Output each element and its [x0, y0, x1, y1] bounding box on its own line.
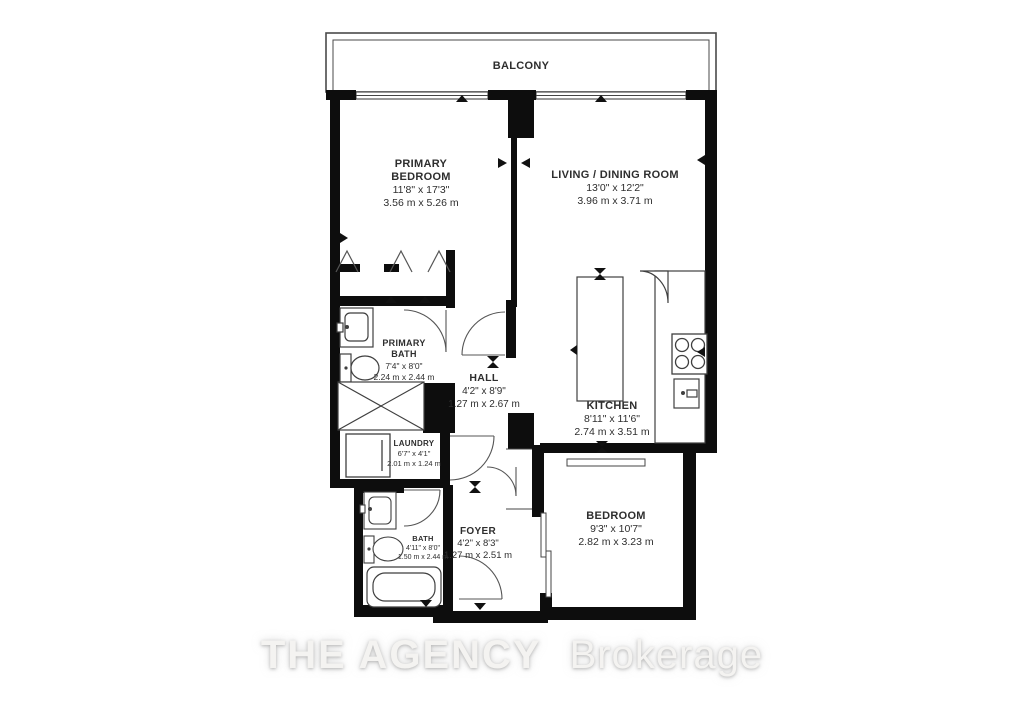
svg-text:BATH: BATH: [391, 349, 417, 359]
svg-text:3.96 m x 3.71 m: 3.96 m x 3.71 m: [577, 195, 653, 207]
svg-text:13'0" x 12'2": 13'0" x 12'2": [586, 182, 644, 194]
svg-text:4'11" x 8'0": 4'11" x 8'0": [406, 545, 440, 552]
svg-text:FOYER: FOYER: [460, 526, 496, 537]
svg-text:2.74 m x 3.51 m: 2.74 m x 3.51 m: [574, 426, 650, 438]
living-dining-label: LIVING / DINING ROOM 13'0" x 12'2" 3.96 …: [551, 169, 679, 207]
foyer-label: FOYER 4'2" x 8'3" 1.27 m x 2.51 m: [444, 526, 512, 561]
svg-text:11'8" x 17'3": 11'8" x 17'3": [393, 184, 450, 196]
washer-icon: [346, 434, 390, 477]
watermark-suffix: Brokerage: [570, 633, 764, 677]
floor-plan-page: BALCONY PRIMARY BEDROOM 11'8" x 17'3" 3.…: [0, 0, 1024, 724]
svg-text:LAUNDRY: LAUNDRY: [394, 439, 435, 448]
svg-text:3.56 m x 5.26 m: 3.56 m x 5.26 m: [383, 197, 459, 209]
svg-text:6'7" x 4'1": 6'7" x 4'1": [398, 449, 431, 458]
shower-icon: [338, 382, 424, 430]
bedroom-label: BEDROOM 9'3" x 10'7" 2.82 m x 3.23 m: [578, 510, 654, 548]
svg-text:HALL: HALL: [469, 372, 498, 384]
closet-shelf: [567, 459, 645, 466]
sink-icon: [360, 492, 396, 529]
sliding-door: [541, 513, 551, 597]
primary-bath-label: PRIMARY BATH 7'4" x 8'0" 2.24 m x 2.44 m: [374, 338, 435, 382]
watermark-brand: THE AGENCY: [261, 633, 542, 677]
watermark: THE AGENCYBrokerage: [0, 633, 1024, 678]
primary-bedroom-label: PRIMARY BEDROOM 11'8" x 17'3" 3.56 m x 5…: [383, 158, 459, 209]
svg-text:BEDROOM: BEDROOM: [391, 171, 451, 183]
svg-text:BATH: BATH: [412, 534, 433, 543]
svg-text:1.50 m x 2.44 m: 1.50 m x 2.44 m: [398, 554, 448, 561]
svg-text:2.82 m x 3.23 m: 2.82 m x 3.23 m: [578, 536, 654, 548]
balcony-label: BALCONY: [493, 60, 550, 72]
svg-text:4'2" x 8'9": 4'2" x 8'9": [462, 386, 506, 397]
svg-text:2.01 m x 1.24 m: 2.01 m x 1.24 m: [387, 459, 441, 468]
svg-text:LIVING / DINING ROOM: LIVING / DINING ROOM: [551, 169, 679, 181]
laundry-label: LAUNDRY 6'7" x 4'1" 2.01 m x 1.24 m: [387, 439, 441, 468]
svg-text:8'11" x 11'6": 8'11" x 11'6": [584, 413, 640, 425]
svg-text:PRIMARY: PRIMARY: [382, 338, 425, 348]
bath-label: BATH 4'11" x 8'0" 1.50 m x 2.44 m: [398, 534, 448, 561]
svg-text:1.27 m x 2.51 m: 1.27 m x 2.51 m: [444, 550, 512, 561]
svg-text:PRIMARY: PRIMARY: [395, 158, 448, 170]
svg-text:4'2" x 8'3": 4'2" x 8'3": [457, 538, 499, 549]
svg-text:2.24 m x 2.44 m: 2.24 m x 2.44 m: [374, 372, 435, 382]
floor-plan-svg: BALCONY PRIMARY BEDROOM 11'8" x 17'3" 3.…: [0, 0, 1024, 724]
svg-text:1.27 m x 2.67 m: 1.27 m x 2.67 m: [448, 399, 520, 410]
kitchen-label: KITCHEN 8'11" x 11'6" 2.74 m x 3.51 m: [574, 400, 650, 438]
svg-text:BEDROOM: BEDROOM: [586, 510, 646, 522]
sink-icon: [337, 308, 373, 347]
svg-text:7'4" x 8'0": 7'4" x 8'0": [385, 361, 422, 371]
svg-text:9'3" x 10'7": 9'3" x 10'7": [590, 523, 642, 535]
svg-text:KITCHEN: KITCHEN: [587, 400, 638, 412]
kitchen-island: [577, 277, 623, 401]
hall-label: HALL 4'2" x 8'9" 1.27 m x 2.67 m: [448, 372, 520, 410]
dishwasher-icon: [674, 379, 699, 408]
